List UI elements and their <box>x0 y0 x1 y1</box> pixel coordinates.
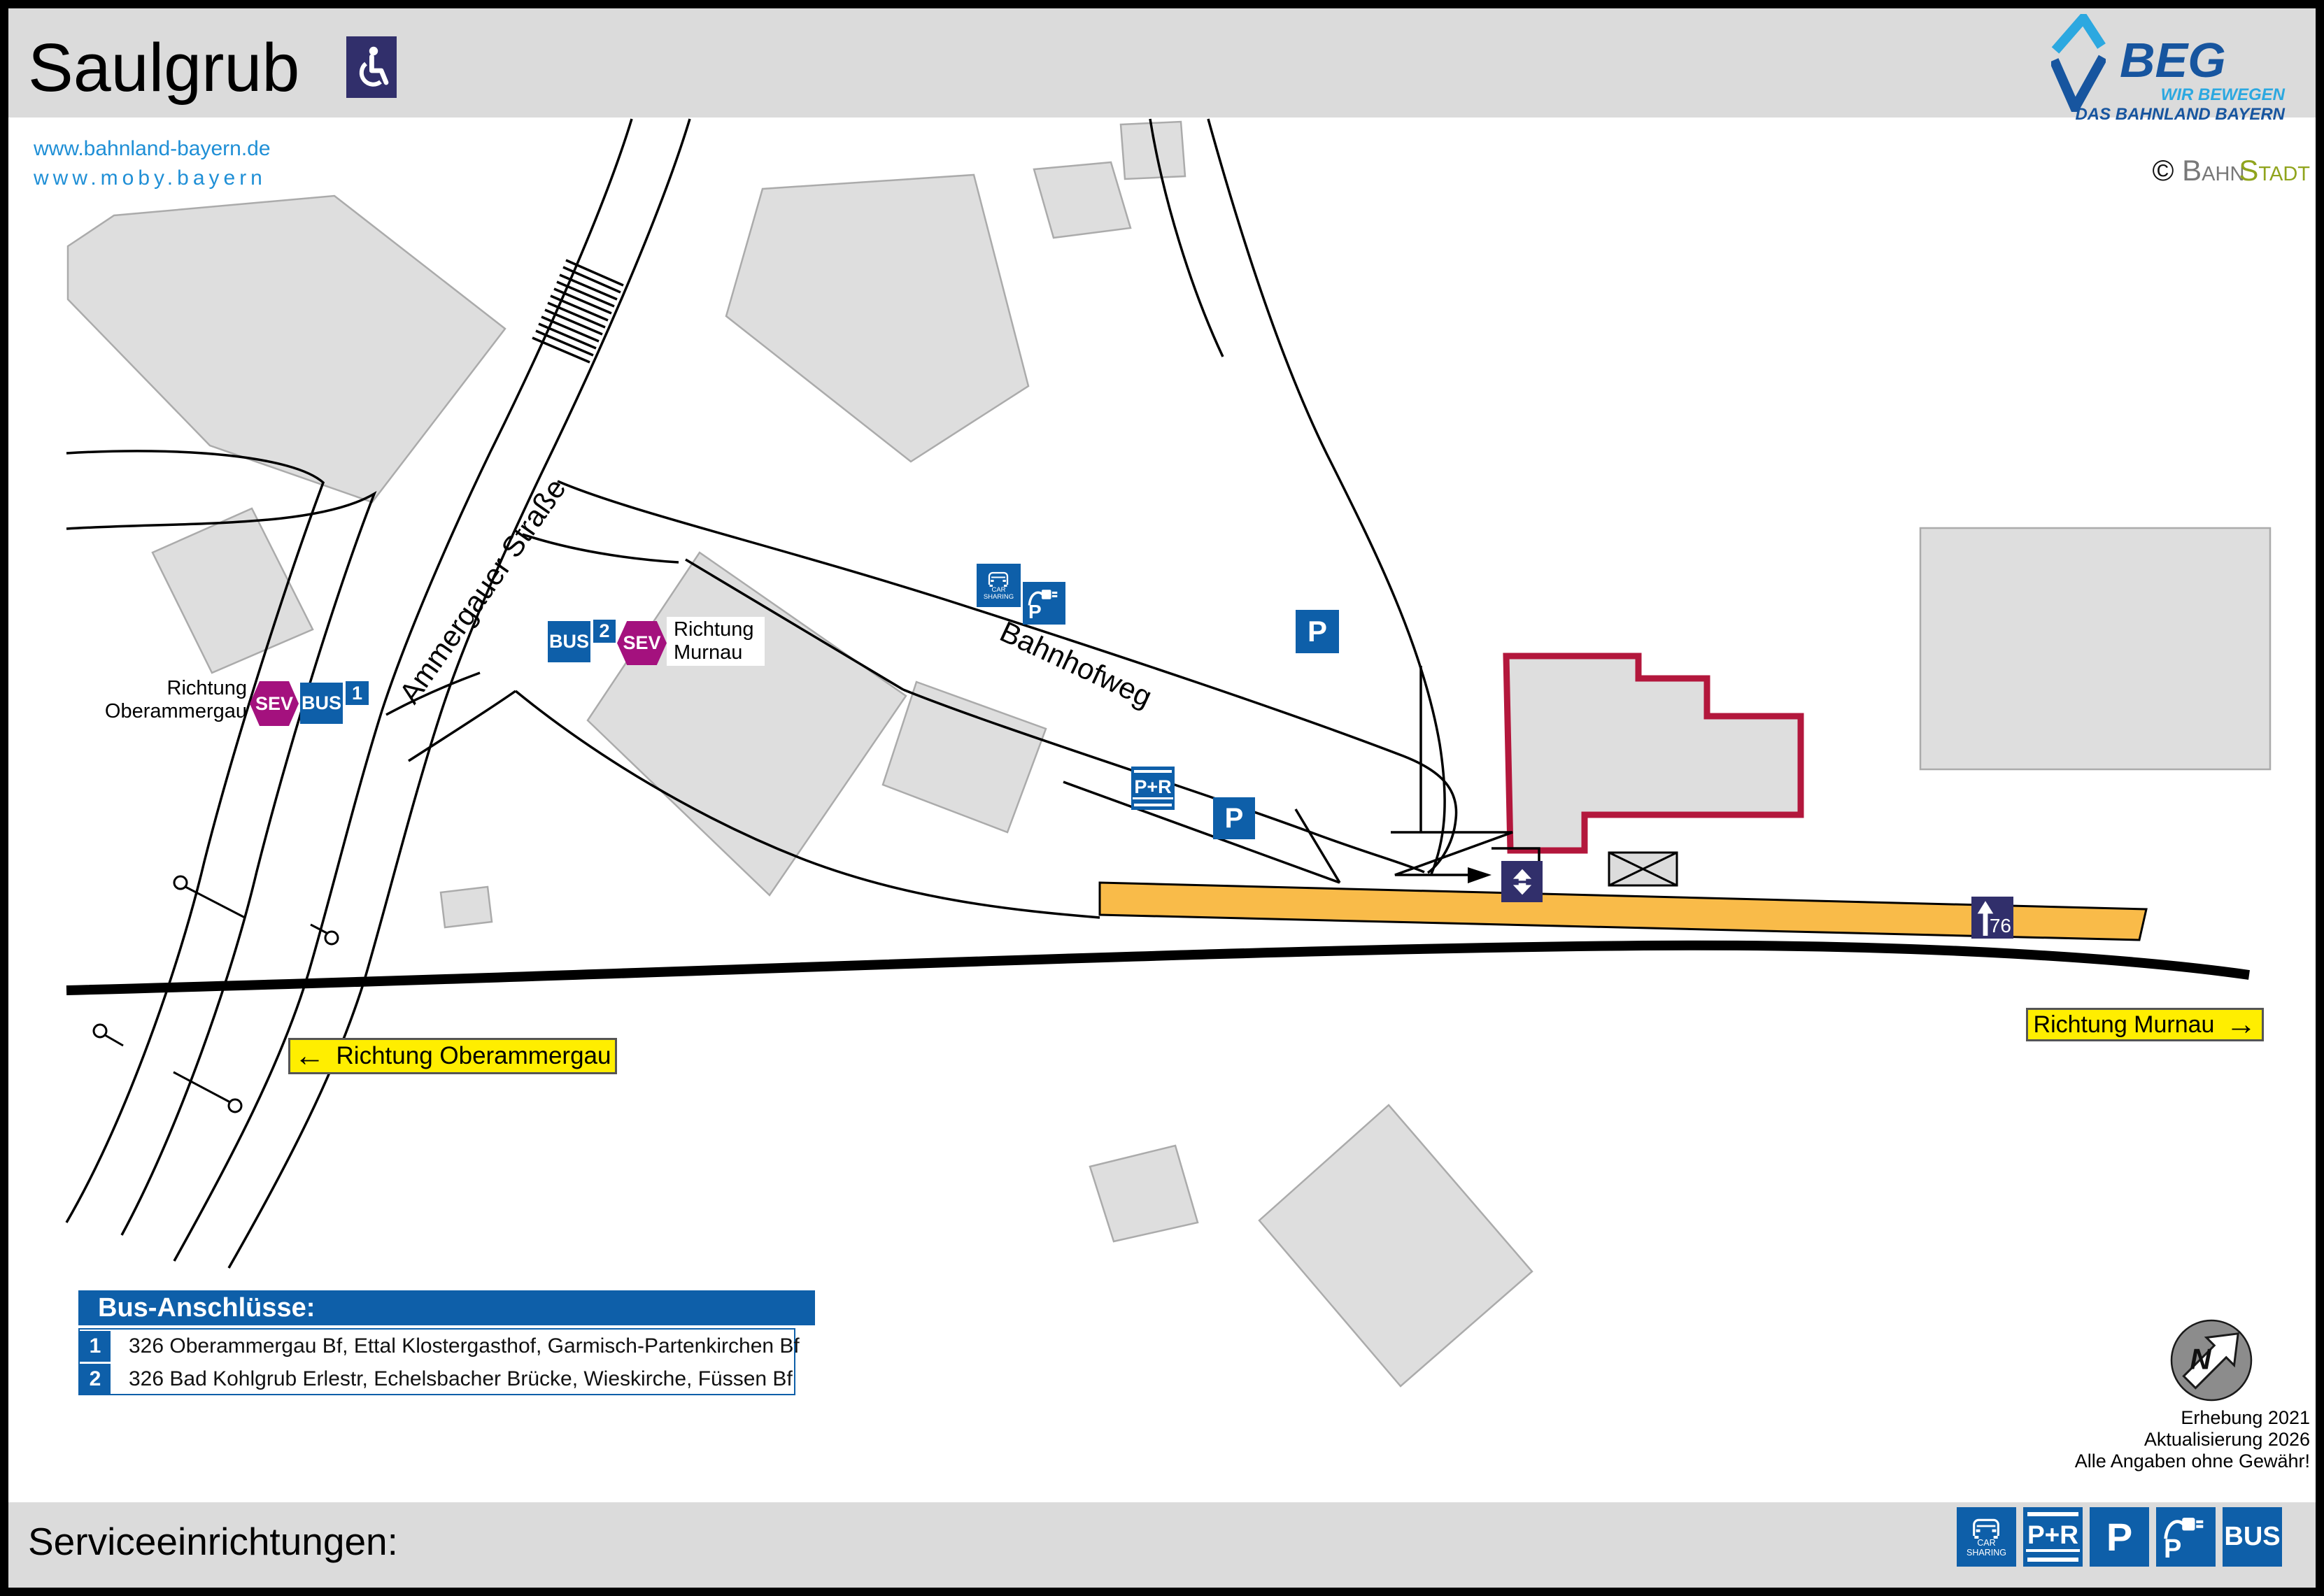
beg-logo: BEG WIR BEWEGEN DAS BAHNLAND BAYERN <box>2050 10 2288 115</box>
survey-line-3: Alle Angaben ohne Gewähr! <box>1960 1451 2310 1472</box>
bahnstadt-part1: Bahn <box>2182 154 2244 187</box>
station-building-highlight <box>1506 656 1801 850</box>
parking-letter: P <box>1225 803 1244 834</box>
carsharing-label-1: CAR <box>1977 1539 1995 1548</box>
bus-line-destinations: 326 Oberammergau Bf, Ettal Klostergastho… <box>111 1334 800 1358</box>
station-map-page: N Saulgrub BEG WIR BEWEGEN DAS BAHNLAND … <box>0 0 2324 1596</box>
bus-badge-stop-1: BUS <box>300 683 343 724</box>
sign-richtung-murnau: Richtung Murnau → <box>2026 1008 2264 1041</box>
bus-legend-row: 1 326 Oberammergau Bf, Ettal Klostergast… <box>80 1330 794 1362</box>
parking-icon-north: P <box>1296 610 1339 653</box>
bus-legend-header: Bus-Anschlüsse: <box>78 1290 815 1325</box>
bus-legend-table: 1 326 Oberammergau Bf, Ettal Klostergast… <box>78 1328 795 1395</box>
link-moby-bayern[interactable]: www.moby.bayern <box>34 166 267 190</box>
pedestrian-crossing <box>532 260 623 362</box>
elevator-icon <box>1501 861 1543 902</box>
sev-label: SEV <box>623 632 660 654</box>
stop-number: 1 <box>352 683 362 704</box>
direction-line-2: Oberammergau <box>56 700 247 723</box>
park-and-ride-icon: P+R <box>1131 767 1175 810</box>
bus-badge-stop-2: BUS <box>548 621 590 662</box>
page-title: Saulgrub <box>28 34 299 101</box>
sign-richtung-oberammergau: ← Richtung Oberammergau <box>288 1038 617 1074</box>
arrow-left-icon: ← <box>295 1041 325 1071</box>
parking-icon-south: P <box>1213 797 1255 839</box>
parking-letter: P <box>1028 601 1042 623</box>
building-footprints <box>68 122 2270 1386</box>
bahnstadt-credit: © BahnStadt <box>2064 154 2310 187</box>
link-bahnland-bayern[interactable]: www.bahnland-bayern.de <box>34 137 271 161</box>
survey-line-2: Aktualisierung 2026 <box>1960 1429 2310 1451</box>
pr-label: P+R <box>2026 1522 2080 1552</box>
bus-legend-title: Bus-Anschlüsse: <box>98 1293 315 1323</box>
carsharing-label-2: SHARING <box>984 594 1014 601</box>
bus-label: BUS <box>549 631 589 653</box>
service-parking-icon: P <box>2090 1507 2149 1567</box>
sev-badge-stop-2: SEV <box>617 621 667 665</box>
bus-line-number: 2 <box>80 1364 111 1395</box>
north-compass-icon: N <box>2170 1314 2252 1400</box>
sign-label: Richtung Murnau <box>2034 1011 2215 1039</box>
copyright-icon: © <box>2153 154 2174 187</box>
carsharing-icon: CAR SHARING <box>977 564 1021 607</box>
survey-line-1: Erhebung 2021 <box>1960 1407 2310 1429</box>
car-icon <box>1969 1516 2003 1539</box>
bus-stop-2-direction: Richtung Murnau <box>667 617 765 666</box>
bus-label: BUS <box>302 692 341 714</box>
service-carsharing-icon: CAR SHARING <box>1957 1507 2016 1567</box>
echarging-icon: P <box>1023 582 1065 625</box>
footer-title: Serviceeinrichtungen: <box>28 1519 398 1564</box>
stop-number-badge-1: 1 <box>344 681 369 705</box>
bus-label: BUS <box>2224 1522 2280 1552</box>
bus-line-number: 1 <box>80 1331 111 1362</box>
north-label: N <box>2190 1343 2212 1376</box>
car-icon <box>986 570 1011 587</box>
platform-height-value: 76 <box>1990 915 2011 937</box>
bus-stop-1-direction: Richtung Oberammergau <box>56 677 247 723</box>
bus-line-destinations: 326 Bad Kohlgrub Erlestr, Echelsbacher B… <box>111 1367 793 1391</box>
platform-height-icon: 76 <box>1971 897 2013 939</box>
service-icons: CAR SHARING P+R P P BUS <box>1957 1507 2282 1567</box>
beg-tagline-1: WIR BEWEGEN <box>2161 85 2285 105</box>
parking-letter: P <box>1308 615 1327 648</box>
bahnstadt-part2: Stadt <box>2239 154 2310 187</box>
service-bus-icon: BUS <box>2223 1507 2282 1567</box>
beg-diamond-icon <box>2051 14 2106 112</box>
beg-tagline-2: DAS BAHNLAND BAYERN <box>2075 105 2285 124</box>
stop-number: 2 <box>599 620 609 642</box>
parking-letter: P <box>2106 1514 2132 1560</box>
direction-line-1: Richtung <box>56 677 247 700</box>
parking-letter: P <box>2164 1534 2181 1565</box>
beg-wordmark: BEG <box>2120 32 2226 88</box>
direction-line-1: Richtung <box>674 618 765 641</box>
shelter-box <box>1609 853 1677 885</box>
bus-legend-row: 2 326 Bad Kohlgrub Erlestr, Echelsbacher… <box>80 1363 794 1395</box>
carsharing-label-2: SHARING <box>1967 1548 2006 1558</box>
sign-label: Richtung Oberammergau <box>336 1042 611 1070</box>
service-echarging-icon: P <box>2156 1507 2216 1567</box>
arrow-right-icon: → <box>2225 1009 2256 1040</box>
survey-note: Erhebung 2021 Aktualisierung 2026 Alle A… <box>1960 1407 2310 1472</box>
railway-line <box>66 946 2249 990</box>
sev-label: SEV <box>255 693 293 715</box>
sev-badge-stop-1: SEV <box>250 681 299 726</box>
direction-line-2: Murnau <box>674 641 765 664</box>
ramp-arrow-icon <box>1468 867 1492 883</box>
pr-label: P+R <box>1133 777 1172 799</box>
wheelchair-icon <box>346 36 397 98</box>
stop-number-badge-2: 2 <box>592 620 616 643</box>
service-park-and-ride-icon: P+R <box>2023 1507 2083 1567</box>
